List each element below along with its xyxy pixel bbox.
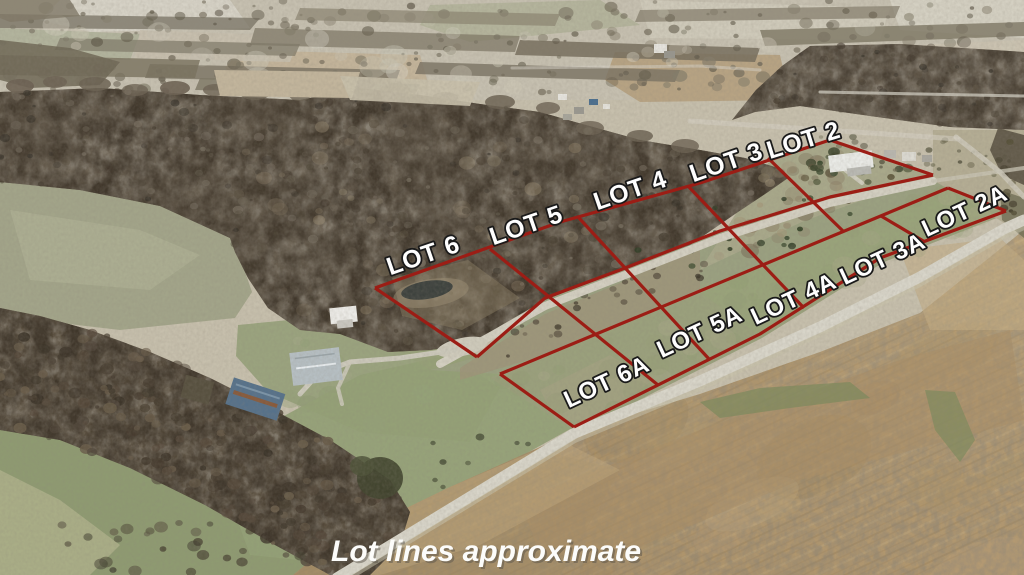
svg-text:Lot lines approximate: Lot lines approximate — [331, 535, 641, 568]
